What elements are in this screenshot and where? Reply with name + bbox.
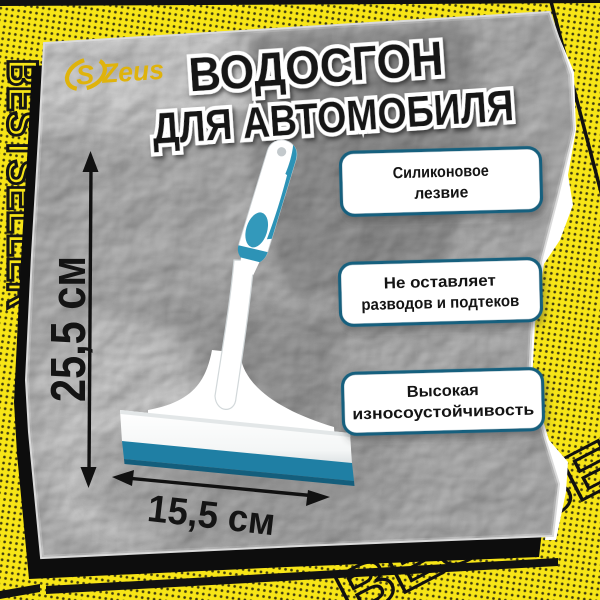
svg-text:25,5 см: 25,5 см xyxy=(42,256,96,402)
svg-text:Zeus: Zeus xyxy=(100,55,165,89)
svg-text:Силиконовое: Силиконовое xyxy=(393,163,489,183)
svg-text:лезвие: лезвие xyxy=(414,184,469,202)
svg-text:Не оставляет: Не оставляет xyxy=(384,273,497,293)
svg-text:S: S xyxy=(75,59,95,90)
svg-text:Высокая: Высокая xyxy=(407,382,479,401)
